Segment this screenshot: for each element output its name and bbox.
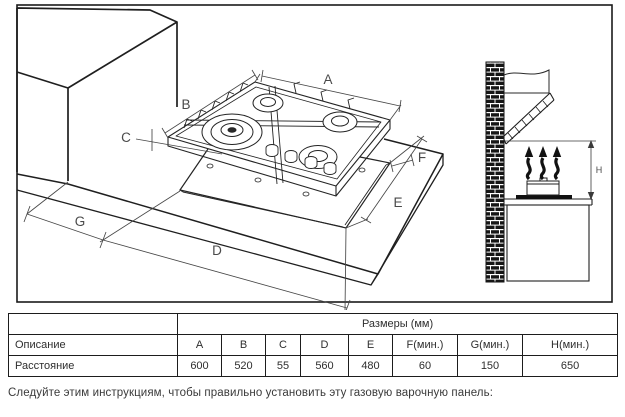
dist-F: 60 [393,356,458,377]
pot [527,178,559,195]
wall-cabinet-box [17,8,177,181]
dist-D: 560 [301,356,349,377]
dist-A: 600 [178,356,222,377]
description-row: Описание A B C D E F(мин.) G(мин.) H(мин… [9,335,618,356]
desc-A: A [178,335,222,356]
dimensions-table: Размеры (мм) Описание A B C D E F(мин.) … [8,313,618,377]
side-hob-strip [516,195,572,199]
dist-C: 55 [266,356,301,377]
label-B: B [181,97,190,112]
label-A: A [323,72,332,87]
desc-C: C [266,335,301,356]
burner-small-back [253,94,283,112]
installation-instructions-page: A B C D E F G H [0,0,625,417]
desc-E: E [349,335,393,356]
instruction-caption: Следуйте этим инструкциям, чтобы правиль… [8,387,618,399]
cooker-hood [503,93,554,144]
corner-cell [9,314,178,335]
distance-row: Расстояние 600 520 55 560 480 60 150 650 [9,356,618,377]
label-C: C [121,130,131,145]
h-dimension [588,140,594,200]
desc-D: D [301,335,349,356]
burner-large [202,114,262,150]
dist-B: 520 [222,356,266,377]
dist-E: 480 [349,356,393,377]
desc-G: G(мин.) [458,335,523,356]
table-header-row: Размеры (мм) [9,314,618,335]
burner-right-back [323,112,357,132]
distance-label-cell: Расстояние [9,356,178,377]
duct-box [504,70,549,93]
side-view [486,62,596,282]
heat-arrows [525,146,561,179]
label-G: G [75,214,86,229]
desc-B: B [222,335,266,356]
desc-H: H(мин.) [523,335,618,356]
size-header-cell: Размеры (мм) [178,314,618,335]
desc-F: F(мин.) [393,335,458,356]
dist-H: 650 [523,356,618,377]
label-F: F [418,150,426,165]
label-D: D [212,243,222,258]
installation-diagram: A B C D E F G H [0,0,625,310]
brick-wall [486,62,504,282]
label-E: E [393,195,402,210]
label-H: H [596,165,603,175]
dist-G: 150 [458,356,523,377]
gas-hob [168,82,390,196]
side-counter-and-cabinet [504,199,592,281]
description-label-cell: Описание [9,335,178,356]
